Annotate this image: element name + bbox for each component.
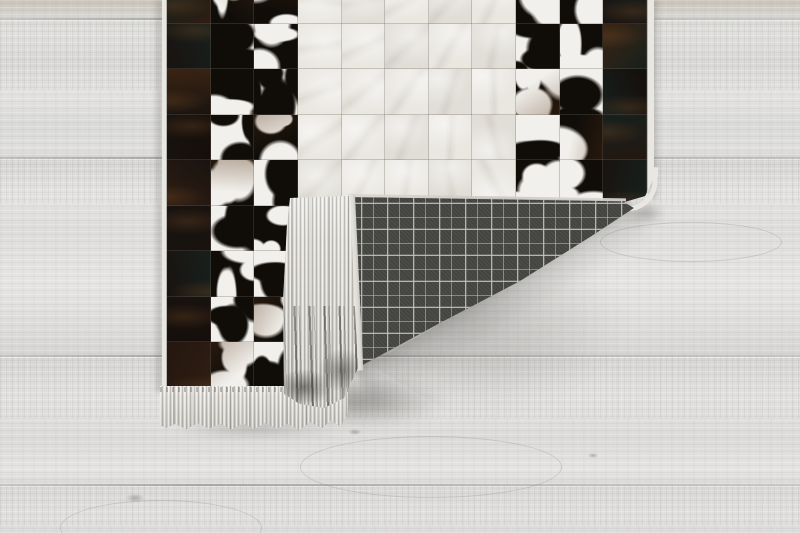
patch-cell-cream bbox=[472, 24, 516, 70]
patch-cell-cream bbox=[342, 24, 386, 70]
wood-knot bbox=[346, 428, 364, 436]
wood-knot bbox=[122, 492, 148, 504]
patch-cell-cream bbox=[298, 115, 342, 161]
patch-cell-spotted-black bbox=[211, 160, 255, 206]
patch-cell-dark bbox=[167, 206, 211, 252]
patch-cell-cream bbox=[385, 69, 429, 115]
patch-cell-spotted-black bbox=[211, 251, 255, 297]
patch-cell-cream bbox=[472, 0, 516, 24]
patch-cell-spotted-white bbox=[211, 297, 255, 343]
patch-cell-cream bbox=[429, 24, 473, 70]
patch-cell-spotted-white bbox=[560, 69, 604, 115]
patch-cell-spotted-white bbox=[211, 206, 255, 252]
patch-cell-spotted-white bbox=[254, 69, 298, 115]
patch-cell-spotted-black bbox=[211, 69, 255, 115]
patch-cell-cream bbox=[298, 69, 342, 115]
patch-cell-dark bbox=[167, 115, 211, 161]
flap-fringe bbox=[278, 194, 364, 410]
patch-cell-cream bbox=[472, 69, 516, 115]
patch-cell-cream bbox=[342, 115, 386, 161]
patch-cell-cream bbox=[429, 69, 473, 115]
patch-cell-cream bbox=[385, 24, 429, 70]
patch-cell-spotted-black bbox=[211, 0, 255, 24]
patch-cell-dark bbox=[603, 0, 647, 24]
patch-cell-dark bbox=[603, 24, 647, 70]
patch-cell-spotted-black bbox=[560, 24, 604, 70]
patch-cell-cream bbox=[472, 115, 516, 161]
patch-cell-dark bbox=[603, 115, 647, 161]
edge-binding-left bbox=[162, 0, 167, 390]
patch-cell-spotted-black bbox=[254, 24, 298, 70]
patch-cell-spotted-black bbox=[254, 115, 298, 161]
patch-cell-dark bbox=[167, 0, 211, 24]
patch-cell-dark bbox=[167, 24, 211, 70]
patch-cell-dark bbox=[167, 297, 211, 343]
patch-cell-spotted-black bbox=[254, 0, 298, 24]
patch-cell-spotted-black bbox=[516, 0, 560, 24]
wood-knot bbox=[586, 452, 600, 459]
wood-grain-arc bbox=[600, 222, 782, 262]
patch-cell-dark bbox=[167, 69, 211, 115]
patch-cell-dark bbox=[167, 251, 211, 297]
patch-cell-cream bbox=[298, 24, 342, 70]
patch-cell-cream bbox=[342, 0, 386, 24]
patch-cell-spotted-white bbox=[211, 24, 255, 70]
patch-cell-spotted-black bbox=[560, 115, 604, 161]
patch-cell-spotted-white bbox=[516, 115, 560, 161]
patch-cell-dark bbox=[603, 69, 647, 115]
patch-cell-dark bbox=[167, 342, 211, 388]
patch-cell-cream bbox=[385, 0, 429, 24]
wood-grain-band bbox=[0, 356, 800, 418]
patch-cell-spotted-black bbox=[516, 69, 560, 115]
patch-cell-spotted-white bbox=[211, 115, 255, 161]
product-photo bbox=[0, 0, 800, 533]
patch-cell-cream bbox=[342, 69, 386, 115]
patch-cell-spotted-black bbox=[211, 342, 255, 388]
patch-cell-cream bbox=[429, 115, 473, 161]
patch-cell-spotted-white bbox=[516, 24, 560, 70]
wood-grain-arc bbox=[300, 436, 562, 498]
patch-cell-spotted-black bbox=[560, 0, 604, 24]
patch-cell-cream bbox=[298, 0, 342, 24]
patch-cell-dark bbox=[167, 160, 211, 206]
patch-cell-cream bbox=[385, 115, 429, 161]
patch-cell-cream bbox=[429, 0, 473, 24]
